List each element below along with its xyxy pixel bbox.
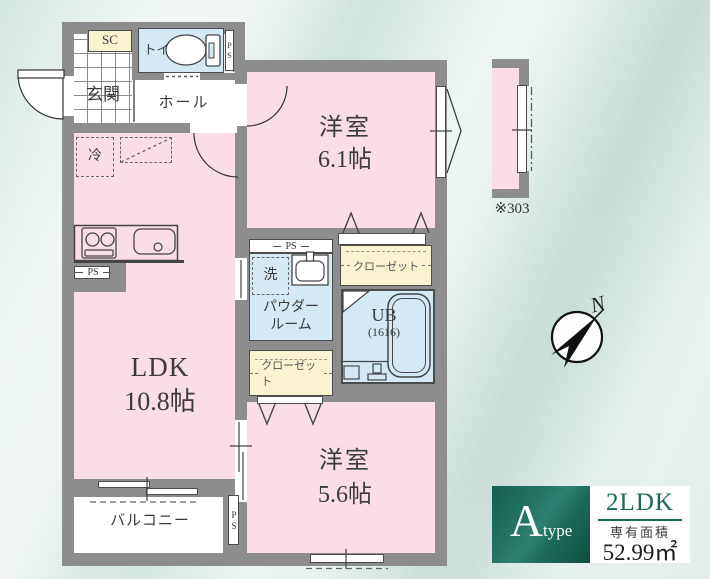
area-value: 52.99㎡ (590, 541, 690, 565)
wall-mid-1 (235, 60, 247, 84)
type-badge-green: Atype (492, 486, 590, 563)
annex-wall-bottom (492, 189, 529, 198)
floorplan-canvas: クローゼット クローゼット 玄関 SC トイレ ホール 洋室 6.1帖 LDK … (0, 0, 710, 579)
note-303: ※303 (478, 201, 546, 218)
badge-divider (598, 519, 682, 521)
annex-window (517, 85, 527, 173)
closet2-box: クローゼット (249, 350, 333, 396)
closet1-rail-line (346, 251, 426, 252)
window-western1 (436, 86, 446, 178)
ldk-name: LDK (90, 352, 230, 383)
powder-door-gap (235, 258, 247, 300)
wall-hall-ldk-a (74, 123, 190, 133)
western1-size: 6.1帖 (275, 147, 415, 175)
annex-floor (492, 68, 519, 189)
refrigerator-label: 冷 (76, 149, 114, 165)
ps-powder-label-wrap: PS (249, 239, 333, 253)
compass: N (551, 290, 609, 368)
window-ldk-pane-a (98, 481, 150, 488)
window-western2 (310, 554, 384, 563)
type-badge-info: 2LDK 専有面積 52.99㎡ (590, 486, 690, 563)
casement-window-swing (447, 89, 461, 173)
layout-label: 2LDK (590, 487, 690, 519)
compass-n-label: N (587, 290, 609, 317)
wall-bottom (62, 553, 447, 566)
ldk-door-gap (190, 123, 237, 133)
powder-room-label-2: ルーム (250, 318, 332, 334)
sliding-door-gap (235, 420, 247, 502)
closet2-rail-line (255, 359, 327, 360)
type-letter: A (510, 486, 543, 556)
ps-powder-label: PS (285, 241, 296, 252)
cupboard-space (120, 137, 172, 163)
ldk-size: 10.8帖 (90, 387, 230, 417)
area-label: 専有面積 (590, 524, 690, 541)
compass-circle (552, 312, 602, 362)
toilet-door-gap (164, 73, 200, 80)
compass-needle (551, 316, 597, 368)
type-word: type (543, 514, 572, 548)
genkan-label: 玄関 (74, 85, 132, 105)
western2-name: 洋室 (275, 448, 415, 476)
wall-top-western1 (233, 60, 447, 72)
closet1-box: クローゼット (340, 245, 432, 286)
western2-size: 5.6帖 (275, 482, 415, 510)
closet2-label: クローゼット (261, 357, 321, 389)
shoe-closet-label: SC (88, 33, 132, 48)
room-western2-floor (247, 402, 435, 553)
toilet-label: トイレ (140, 43, 186, 58)
ps-toilet-label: PS (225, 33, 234, 69)
front-door (18, 70, 64, 119)
bath-size: (1616) (345, 326, 423, 340)
ps-kitchen-label-wrap: PS (62, 265, 124, 280)
western1-door-gap (235, 84, 247, 126)
window-ldk-pane-b (146, 488, 198, 495)
ps-balcony-label: PS (228, 500, 239, 542)
front-door-gap (62, 76, 74, 116)
powder-room-label-1: パウダー (250, 300, 332, 316)
washer-label: 洗 (252, 268, 289, 284)
closet1-label: クローゼット (353, 258, 419, 274)
ps-kitchen-label: PS (87, 267, 98, 278)
balcony-label: バルコニー (90, 513, 210, 530)
room-ldk-floor (74, 133, 235, 479)
bath-name: UB (345, 305, 423, 326)
western1-name: 洋室 (275, 115, 415, 143)
annex-wall-right-top (519, 59, 529, 86)
hall-label: ホール (140, 95, 228, 112)
closet1-track (338, 233, 426, 245)
closet2-track (257, 396, 323, 404)
